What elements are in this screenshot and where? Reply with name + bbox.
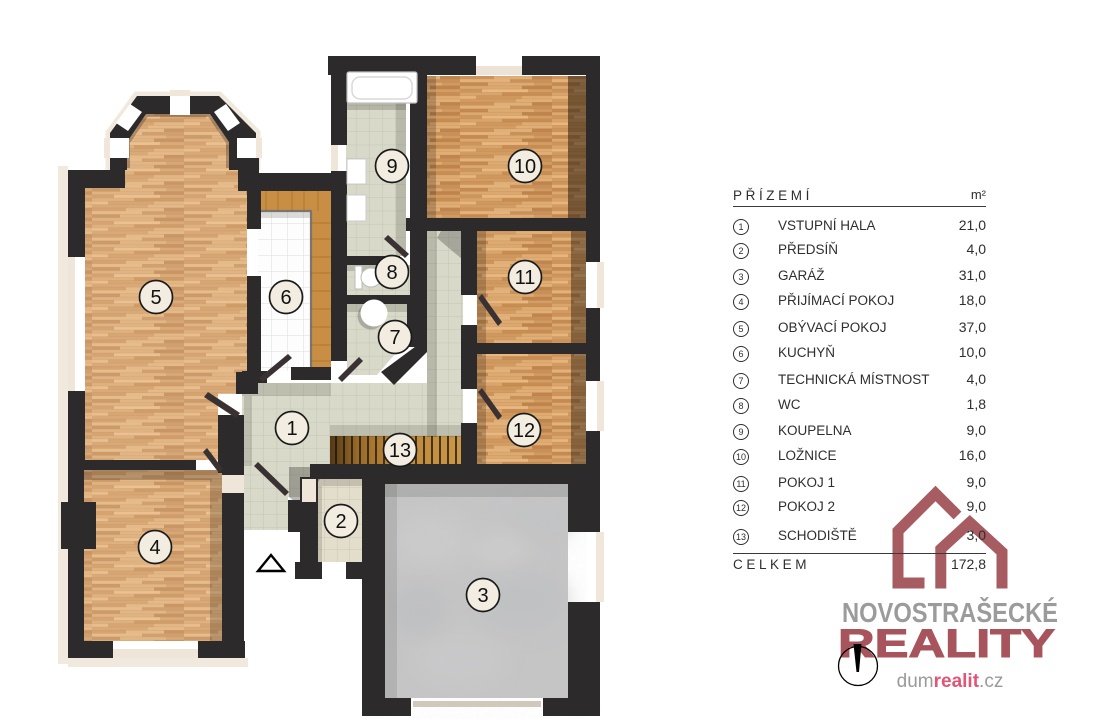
svg-text:1: 1 [286, 418, 297, 440]
svg-text:10: 10 [514, 156, 536, 178]
svg-text:11: 11 [515, 267, 536, 289]
svg-text:8: 8 [386, 262, 397, 284]
svg-text:13: 13 [389, 440, 411, 462]
svg-text:4: 4 [149, 537, 160, 559]
svg-text:12: 12 [513, 420, 535, 442]
svg-text:dumrealit.cz: dumrealit.cz [897, 671, 1004, 692]
svg-text:2: 2 [335, 511, 346, 533]
svg-text:3: 3 [477, 585, 488, 607]
svg-text:5: 5 [150, 287, 161, 309]
svg-text:REALITY: REALITY [838, 622, 1055, 666]
svg-text:6: 6 [280, 287, 291, 309]
svg-text:7: 7 [389, 327, 400, 349]
svg-text:9: 9 [386, 156, 397, 178]
